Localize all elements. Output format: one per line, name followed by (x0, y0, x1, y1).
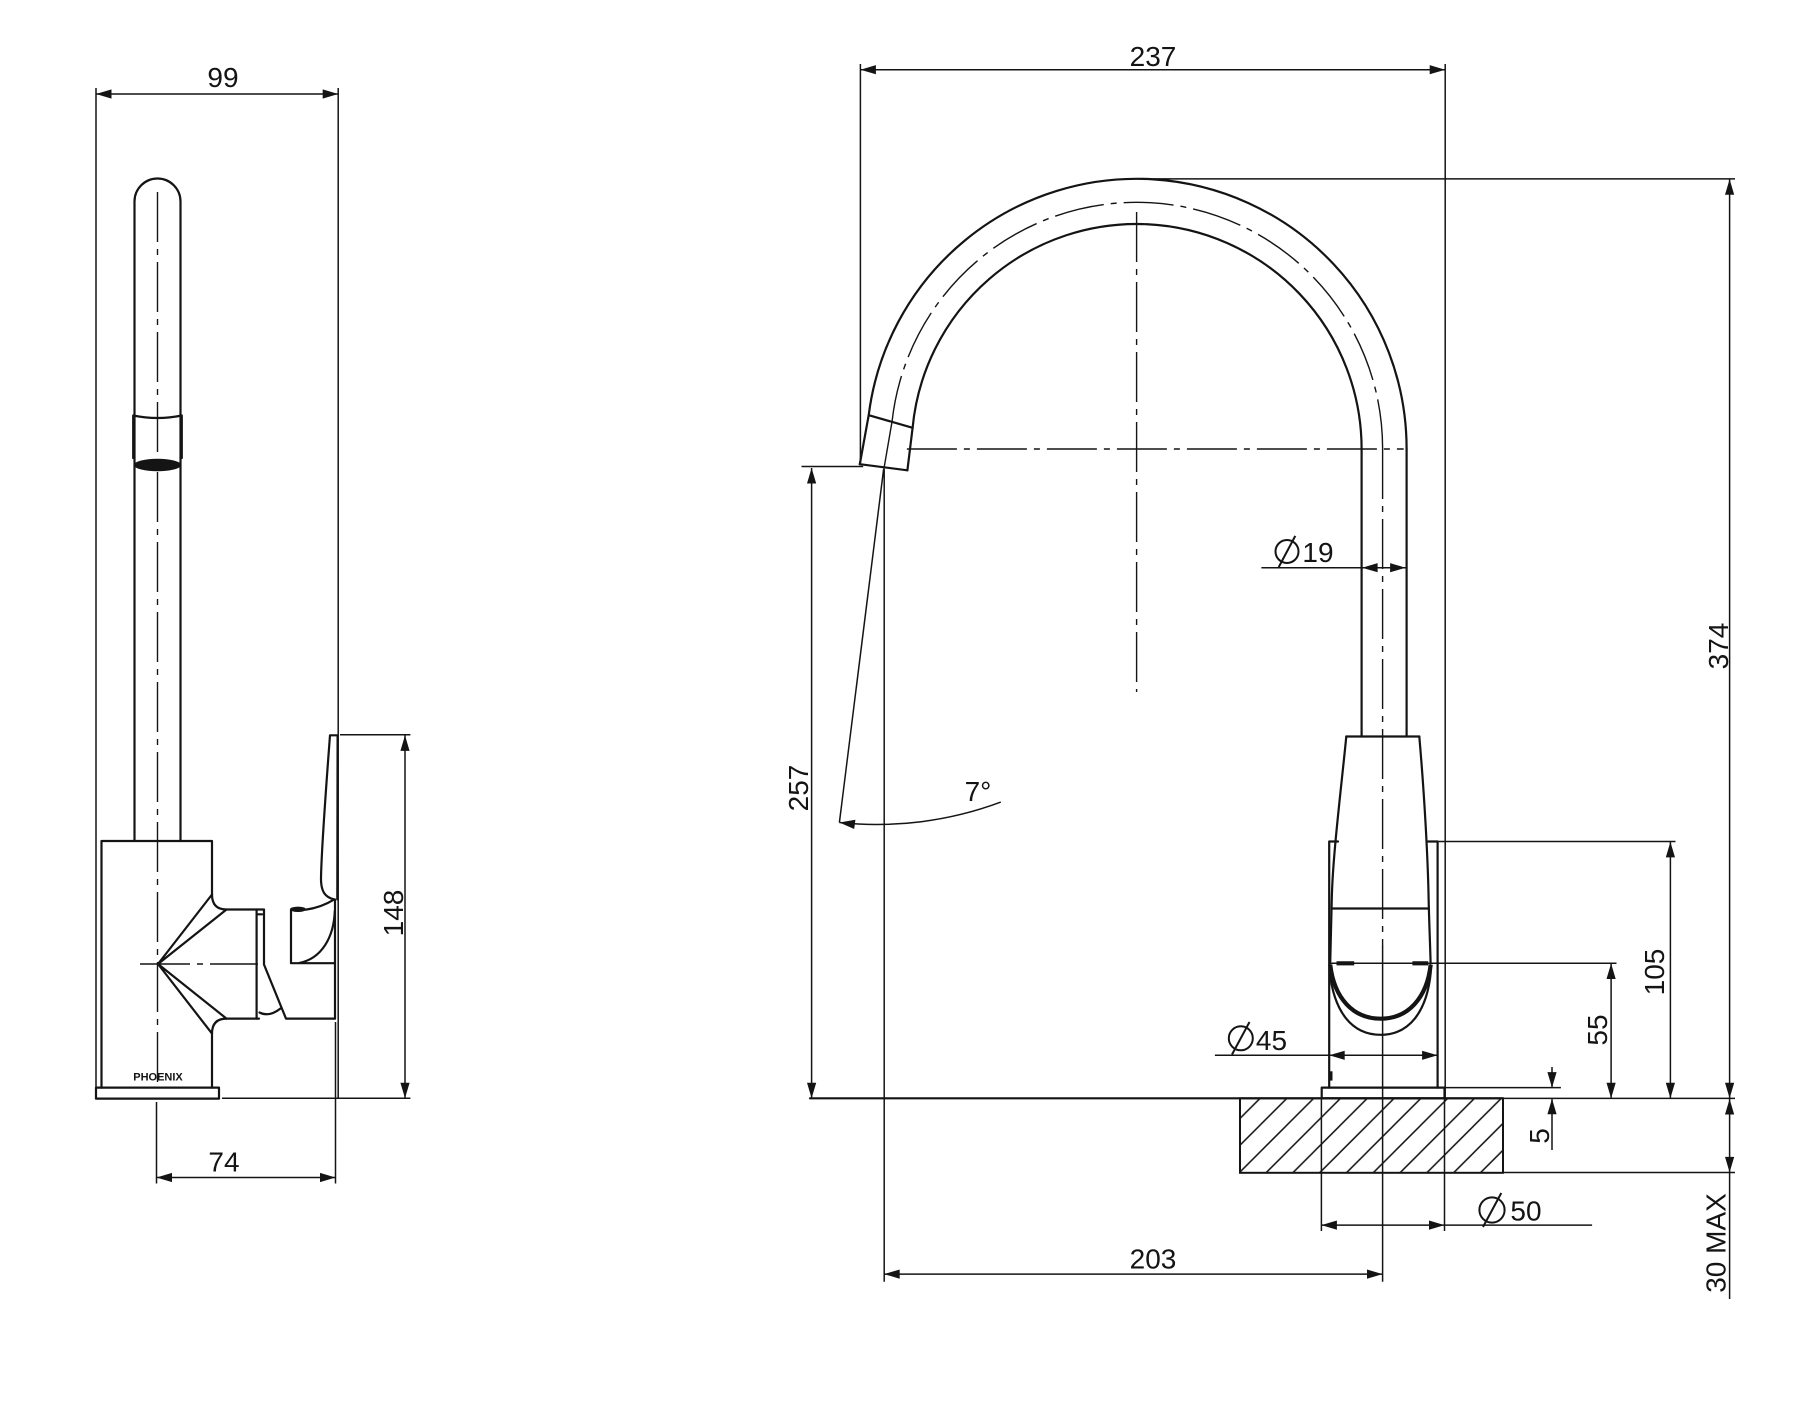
svg-text:5: 5 (1524, 1128, 1555, 1144)
svg-text:19: 19 (1302, 537, 1333, 568)
svg-text:105: 105 (1639, 949, 1670, 996)
svg-text:45: 45 (1256, 1025, 1287, 1056)
svg-text:55: 55 (1582, 1014, 1613, 1045)
svg-text:74: 74 (208, 1147, 239, 1178)
svg-text:PHOENIX: PHOENIX (133, 1072, 183, 1084)
svg-text:203: 203 (1130, 1244, 1177, 1275)
svg-text:50: 50 (1510, 1196, 1541, 1227)
svg-text:99: 99 (207, 62, 238, 93)
svg-text:30 MAX: 30 MAX (1701, 1193, 1732, 1293)
svg-text:237: 237 (1130, 41, 1177, 72)
svg-text:7°: 7° (965, 776, 992, 807)
svg-text:257: 257 (783, 765, 814, 812)
